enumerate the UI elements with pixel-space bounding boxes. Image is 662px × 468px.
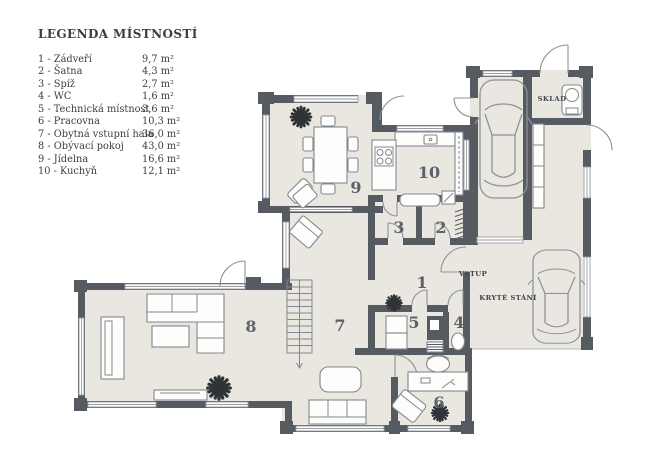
vent-grate: [427, 342, 443, 352]
label-kryte-stani: KRYTÉ STÁNÍ: [479, 293, 536, 302]
label-vstup: VSTUP: [458, 270, 487, 278]
dining-table: [314, 127, 347, 183]
floor-plan-svg: 1 2 3 4 5 6 7 8 9 10 VSTUP KRYTÉ STÁNÍ S…: [0, 0, 662, 468]
label-sklad: SKLAD: [538, 95, 567, 103]
coffee-table: [152, 326, 189, 347]
plant-icon: [208, 377, 231, 400]
room-number-5: 5: [408, 313, 419, 332]
sofa: [309, 400, 366, 424]
plant-icon: [291, 107, 311, 127]
desk-chair: [427, 356, 450, 372]
desk: [408, 372, 468, 391]
storage-shelf: [533, 124, 544, 208]
ottoman: [320, 367, 361, 392]
sink: [424, 135, 437, 144]
room-number-6: 6: [433, 393, 444, 412]
window-bench: [400, 194, 440, 206]
sideboard: [154, 390, 207, 400]
plant-icon: [386, 295, 401, 310]
room-number-8: 8: [245, 317, 256, 336]
toilet: [452, 333, 465, 350]
room-number-7: 7: [334, 316, 345, 335]
room-number-4: 4: [453, 313, 464, 332]
floor-plan-canvas: LEGENDA MÍSTNOSTÍ 1 - Zádveří9,7 m² 2 - …: [0, 0, 662, 468]
room-number-3: 3: [393, 218, 404, 237]
washer: [386, 316, 407, 333]
room-number-9: 9: [350, 178, 361, 197]
room-number-1: 1: [416, 273, 427, 292]
dryer: [386, 333, 407, 349]
room-number-2: 2: [435, 218, 446, 237]
room-number-10: 10: [418, 163, 440, 182]
